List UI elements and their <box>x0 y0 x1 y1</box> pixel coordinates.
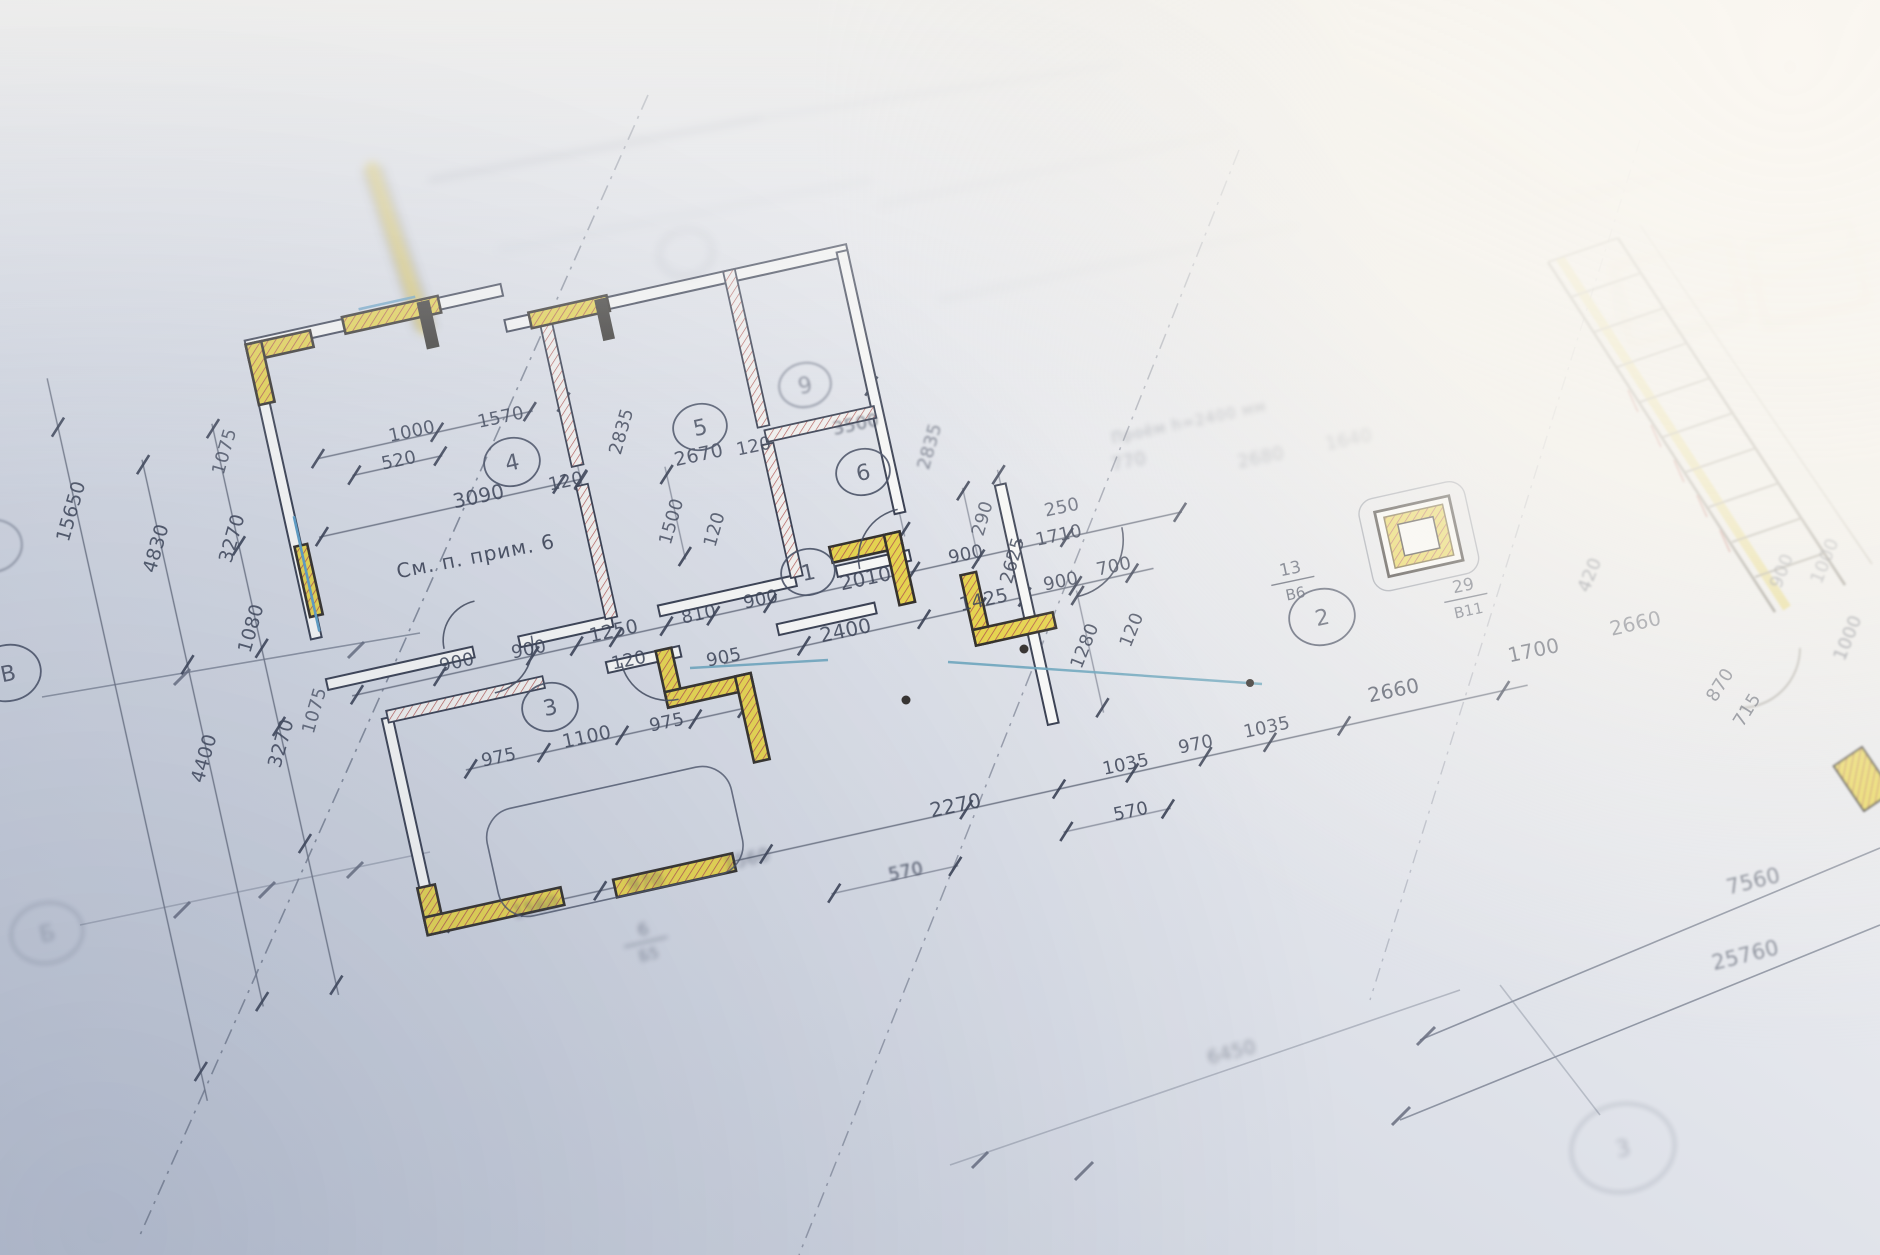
blueprint-photo: 1000157052030901202670120350028352835150… <box>0 0 1880 1255</box>
blueprint-sheet: 1000157052030901202670120350028352835150… <box>0 0 1880 1255</box>
bottom-left-vignette <box>0 0 1880 1255</box>
